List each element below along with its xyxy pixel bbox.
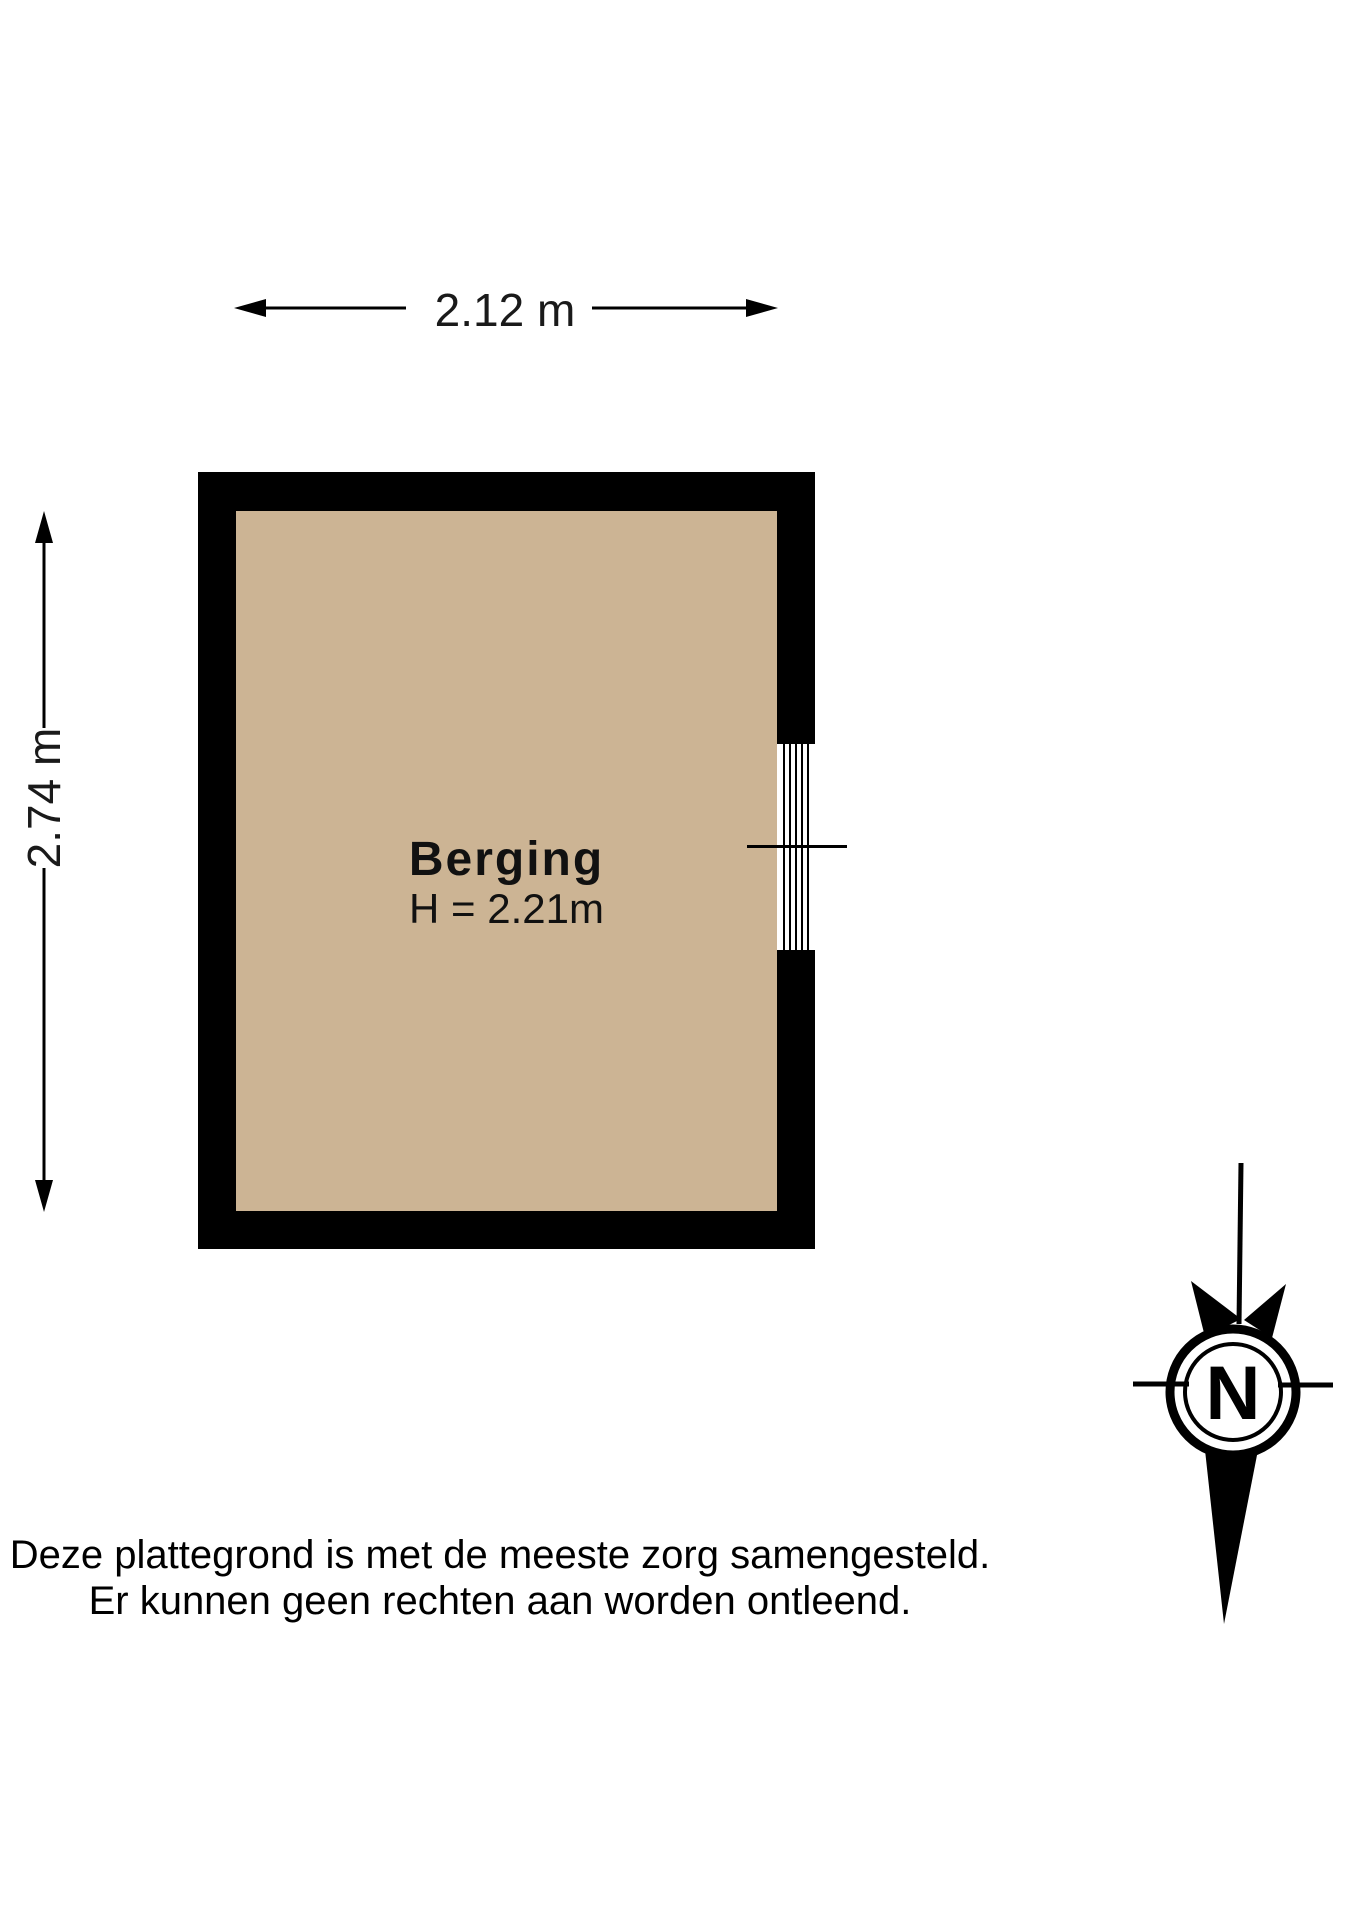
compass-north-icon: N — [1100, 1130, 1358, 1630]
floorplan-canvas: 2.12 m 2.74 m Berging H = 2.21m — [0, 0, 1358, 1920]
compass-south-spike — [1205, 1450, 1258, 1624]
room-label-block: Berging H = 2.21m — [236, 834, 777, 932]
disclaimer-line-1: Deze plattegrond is met de meeste zorg s… — [0, 1532, 1000, 1578]
room-name-label: Berging — [236, 834, 777, 886]
disclaimer-line-2: Er kunnen geen rechten aan worden ontlee… — [0, 1578, 1000, 1624]
disclaimer: Deze plattegrond is met de meeste zorg s… — [0, 1532, 1000, 1624]
room-height-label: H = 2.21m — [236, 886, 777, 932]
compass-needle — [1239, 1163, 1241, 1324]
width-dimension-label: 2.12 m — [220, 283, 790, 337]
compass-north-letter: N — [1206, 1351, 1261, 1436]
height-dimension-label: 2.74 m — [21, 698, 67, 898]
